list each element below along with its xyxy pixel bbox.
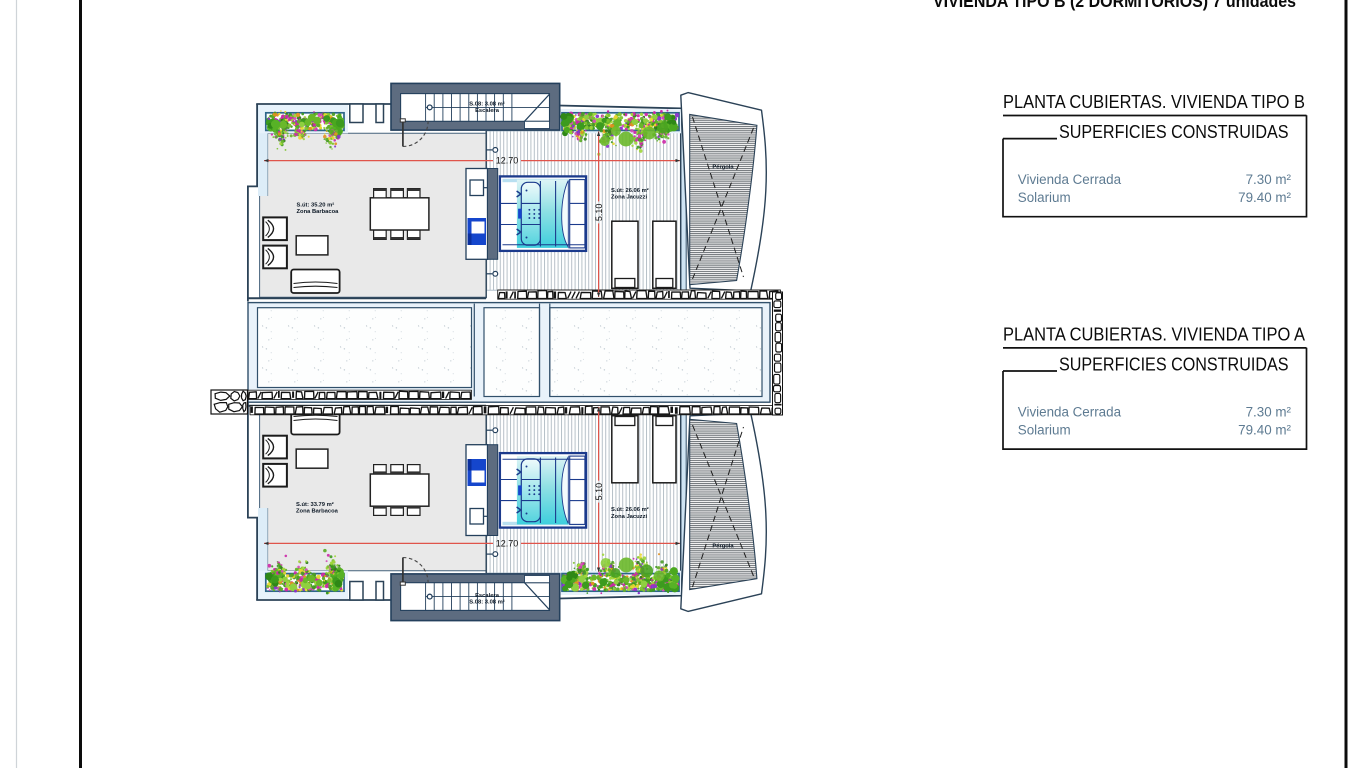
svg-text:Zona Barbacoa: Zona Barbacoa <box>297 209 340 215</box>
svg-text:79.40 m²: 79.40 m² <box>1238 190 1291 205</box>
svg-text:79.40 m²: 79.40 m² <box>1238 422 1291 437</box>
svg-text:S.08: 3.08 m²: S.08: 3.08 m² <box>469 599 505 606</box>
svg-text:Vivienda Cerrada: Vivienda Cerrada <box>1018 172 1122 187</box>
svg-text:S.08: 3.08 m²: S.08: 3.08 m² <box>469 100 505 107</box>
svg-text:VIVIENDA TIPO B (2 DORMITORIOS: VIVIENDA TIPO B (2 DORMITORIOS) 7 unidad… <box>933 0 1296 11</box>
svg-text:5.10: 5.10 <box>594 204 604 222</box>
svg-text:Solarium: Solarium <box>1018 422 1071 437</box>
svg-text:Zona Barbacoa: Zona Barbacoa <box>296 509 339 515</box>
svg-text:S.út: 35.20 m²: S.út: 35.20 m² <box>297 202 335 209</box>
svg-text:PLANTA CUBIERTAS. VIVIENDA TIP: PLANTA CUBIERTAS. VIVIENDA TIPO B <box>1003 92 1305 112</box>
svg-text:12.70: 12.70 <box>496 156 519 166</box>
svg-text:S.út: 26.06 m²: S.út: 26.06 m² <box>611 506 649 513</box>
svg-text:7.30 m²: 7.30 m² <box>1246 172 1292 187</box>
svg-text:12.70: 12.70 <box>496 539 519 549</box>
svg-text:Pérgola: Pérgola <box>712 164 734 170</box>
svg-text:S.út: 33.79 m²: S.út: 33.79 m² <box>296 501 334 508</box>
svg-text:Vivienda Cerrada: Vivienda Cerrada <box>1018 404 1122 419</box>
svg-text:PLANTA CUBIERTAS. VIVIENDA TIP: PLANTA CUBIERTAS. VIVIENDA TIPO A <box>1003 324 1306 344</box>
svg-text:Pérgola: Pérgola <box>712 544 734 550</box>
svg-text:Escalera: Escalera <box>475 593 500 599</box>
svg-text:Escalera: Escalera <box>475 108 500 114</box>
svg-text:7.30 m²: 7.30 m² <box>1246 404 1292 419</box>
svg-text:Zona Jacuzzi: Zona Jacuzzi <box>611 195 647 201</box>
svg-text:5.10: 5.10 <box>594 483 604 501</box>
svg-text:SUPERFICIES CONSTRUIDAS: SUPERFICIES CONSTRUIDAS <box>1059 355 1289 375</box>
svg-text:Zona Jacuzzi: Zona Jacuzzi <box>611 514 647 520</box>
svg-text:SUPERFICIES CONSTRUIDAS: SUPERFICIES CONSTRUIDAS <box>1059 122 1289 142</box>
svg-text:S.út: 26.06 m²: S.út: 26.06 m² <box>611 187 649 194</box>
svg-text:Solarium: Solarium <box>1018 190 1071 205</box>
